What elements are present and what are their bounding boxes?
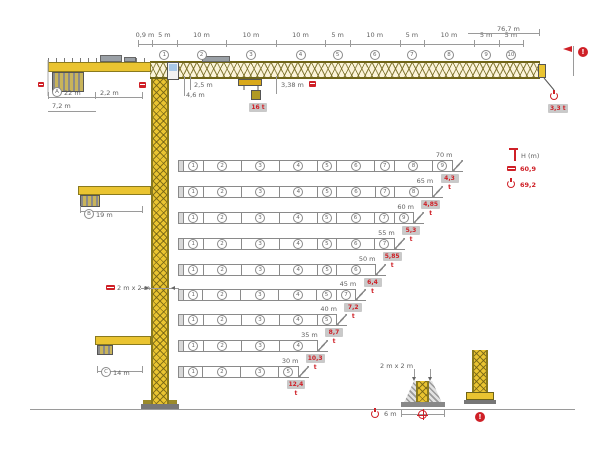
section-number-4: 4 (293, 187, 303, 197)
config-capacity-badge: 4,3 t (441, 174, 459, 183)
section-number-4: 4 (293, 161, 303, 171)
ground-line (30, 409, 575, 410)
jib-dim-line (138, 44, 523, 45)
section-number-2: 2 (217, 213, 227, 223)
section-number-3: 3 (255, 239, 265, 249)
legend-height-2: 69,2 (520, 181, 536, 189)
config-row-65m: 12345678 (178, 186, 433, 198)
config-row-45m: 123457 (178, 289, 356, 301)
tick (142, 92, 143, 99)
jib-tip-taper (433, 186, 443, 198)
section-number-1: 1 (188, 315, 198, 325)
counterjib-machinery (124, 57, 136, 62)
config-section-cell: 3 (242, 213, 280, 223)
jib-segment-length: 10 m (243, 31, 260, 39)
config-section-cell: 4 (279, 290, 317, 300)
counterjib-b-label: 19 m (96, 211, 113, 219)
tick (97, 366, 98, 373)
height-marker-pole (573, 46, 574, 76)
section-number-5: 5 (322, 265, 332, 275)
tick (80, 206, 81, 213)
dim-line-min-radius (276, 76, 277, 94)
section-number-2: 2 (217, 187, 227, 197)
config-section-cell: 4 (280, 341, 317, 351)
section-number-5: 5 (322, 290, 332, 300)
config-section-cell: 2 (204, 239, 242, 249)
section-number-4: 4 (293, 315, 303, 325)
tick (401, 410, 402, 417)
config-row-30m: 1235 (178, 366, 299, 378)
section-number-7: 7 (341, 290, 351, 300)
section-number-2: 2 (217, 161, 227, 171)
section-number-4: 4 (296, 50, 306, 60)
config-section-cell: 7 (375, 239, 394, 249)
jib-segment-length: 0,9 m (136, 31, 155, 39)
config-row-60m: 12345679 (178, 212, 414, 224)
config-section-cell: 2 (204, 161, 242, 171)
jib-truss (150, 61, 540, 79)
section-number-3: 3 (255, 161, 265, 171)
section-number-3: 3 (246, 50, 256, 60)
counterjib-mechanism-icon (38, 82, 44, 87)
alert-icon: ! (475, 412, 485, 422)
counterjib-b-ballast (80, 195, 100, 207)
config-section-cell: 9 (395, 213, 414, 223)
mast-base-plate (141, 404, 179, 409)
section-number-6: 6 (351, 187, 361, 197)
config-section-cell: 6 (337, 213, 375, 223)
dim-line-jib-depth (190, 76, 191, 90)
config-section-cell: 2 (204, 265, 242, 275)
base-mast-label: 2 m x 2 m (380, 362, 413, 370)
section-number-1: 1 (188, 290, 198, 300)
config-section-cell: 4 (280, 265, 318, 275)
tick (142, 206, 143, 213)
section-number-4: 4 (293, 341, 303, 351)
min-radius-label: 3,38 m (281, 81, 304, 89)
climbing-frame-beam (464, 400, 496, 404)
section-number-9: 9 (399, 213, 409, 223)
slewing-mechanism-icon (139, 82, 146, 88)
rear-height-label: 7,2 m (52, 102, 71, 110)
config-section-cell: 1 (184, 187, 204, 197)
counterjib-c-id: C (101, 367, 111, 377)
tick (142, 366, 143, 373)
config-section-cell: 2 (203, 290, 241, 300)
config-section-cell: 5 (279, 367, 297, 377)
config-section-cell: 3 (242, 239, 280, 249)
config-row-50m: 123456 (178, 264, 376, 276)
config-length-label: 70 m (423, 151, 453, 159)
hoist-winch (100, 55, 122, 62)
config-section-cell: 3 (242, 265, 280, 275)
wind-flag-icon (563, 46, 572, 52)
section-number-5: 5 (322, 187, 332, 197)
section-number-3: 3 (255, 367, 265, 377)
alert-icon: ! (578, 47, 588, 57)
operator-cab (167, 62, 179, 80)
section-number-3: 3 (255, 187, 265, 197)
climbing-mast-section (472, 350, 488, 394)
config-section-cell: 6 (337, 187, 375, 197)
counterjib-radius-id: A (52, 87, 62, 97)
arrow-right-icon (145, 286, 149, 290)
jib-tip-taper (299, 366, 309, 378)
jib-segment-length: 10 m (366, 31, 383, 39)
config-section-cell: 3 (242, 315, 280, 325)
config-section-cell: 1 (184, 341, 204, 351)
config-section-cell: 2 (204, 315, 242, 325)
jib-tip-taper (356, 289, 366, 301)
jib-tip-taper (395, 238, 405, 250)
rear-height-dim-line (48, 111, 96, 112)
config-section-cell: 2 (204, 213, 242, 223)
jib-segment-length: 10 m (292, 31, 309, 39)
config-capacity-badge: 8,7 t (325, 328, 343, 337)
config-section-cell: 2 (204, 341, 242, 351)
config-section-cell: 1 (184, 265, 204, 275)
foot-height-label: 4,6 m (186, 91, 205, 99)
config-length-label: 45 m (326, 280, 356, 288)
counterjib-radius-label: 22 m (64, 89, 81, 97)
config-section-cell: 8 (395, 161, 433, 171)
section-number-5: 5 (322, 161, 332, 171)
legend-title: H (m) (521, 152, 539, 160)
tip-hook-icon (550, 90, 558, 100)
mast-section-icon (106, 285, 115, 290)
jib-segment-length: 10 m (193, 31, 210, 39)
section-number-2: 2 (217, 239, 227, 249)
section-number-8: 8 (444, 50, 454, 60)
section-number-2: 2 (197, 50, 207, 60)
dim-line-foot-height (184, 76, 185, 96)
config-capacity-badge: 4,85 t (421, 200, 440, 209)
config-section-cell: 3 (242, 187, 280, 197)
config-section-cell: 2 (203, 367, 241, 377)
config-section-cell: 7 (375, 161, 395, 171)
tip-load-badge: 3,3 t (548, 104, 568, 113)
jib-tip-taper (337, 314, 347, 326)
config-section-cell: 1 (184, 239, 204, 249)
counterjib-b-id: B (84, 209, 94, 219)
config-length-label: 60 m (384, 203, 414, 211)
config-section-cell: 7 (376, 187, 396, 197)
config-length-label: 55 m (365, 229, 395, 237)
config-section-cell: 1 (184, 315, 204, 325)
config-length-label: 65 m (403, 177, 433, 185)
config-section-cell: 2 (204, 187, 242, 197)
jib-segment-length: 10 m (441, 31, 458, 39)
section-number-1: 1 (188, 367, 198, 377)
config-section-cell: 3 (241, 367, 279, 377)
config-section-cell: 6 (337, 265, 374, 275)
section-number-3: 3 (255, 315, 265, 325)
config-capacity-badge: 5,85 t (383, 252, 402, 261)
config-section-cell: 7 (337, 290, 355, 300)
config-length-label: 50 m (346, 255, 376, 263)
legend-height-1: 60,9 (520, 165, 536, 173)
config-section-cell: 3 (242, 161, 280, 171)
section-number-7: 7 (380, 161, 390, 171)
section-number-1: 1 (188, 265, 198, 275)
hook-block (251, 90, 261, 100)
section-number-6: 6 (351, 213, 361, 223)
config-section-cell: 6 (337, 161, 375, 171)
section-number-2: 2 (217, 265, 227, 275)
tick (539, 29, 540, 36)
section-number-1: 1 (159, 50, 169, 60)
section-number-1: 1 (188, 239, 198, 249)
jib-tip-taper (414, 212, 424, 224)
section-number-6: 6 (351, 239, 361, 249)
jib-tip-taper (318, 340, 328, 352)
trolley-mechanism-icon (309, 81, 316, 87)
section-number-10: 10 (506, 50, 516, 60)
crane-height-icon (506, 148, 518, 161)
config-section-cell: 1 (184, 290, 203, 300)
base-span-label: 6 m (384, 410, 397, 418)
section-number-4: 4 (293, 239, 303, 249)
arrow-left-icon (171, 286, 175, 290)
config-capacity-badge: 6,4 t (364, 278, 382, 287)
config-section-cell: 4 (280, 239, 318, 249)
section-number-5: 5 (333, 50, 343, 60)
section-number-7: 7 (407, 50, 417, 60)
config-section-cell: 1 (184, 161, 204, 171)
config-section-cell: 5 (318, 239, 338, 249)
crane-diagram: 16 t 3,3 t 2,5 m 4,6 m 3,38 m A 22 m 2,2… (0, 0, 600, 450)
max-load-badge: 16 t (249, 103, 267, 112)
section-number-3: 3 (255, 213, 265, 223)
config-section-cell: 5 (318, 315, 337, 325)
counterjib-c-ballast (97, 345, 113, 355)
jib-tip-block (538, 64, 546, 78)
section-number-8: 8 (409, 187, 419, 197)
config-section-cell: 5 (318, 187, 338, 197)
section-number-2: 2 (217, 341, 227, 351)
section-number-6: 6 (370, 50, 380, 60)
config-section-cell: 5 (318, 213, 338, 223)
config-capacity-badge: 10,3 t (306, 354, 325, 363)
config-section-cell: 5 (318, 265, 338, 275)
base-hook-icon (371, 408, 379, 418)
trolley (238, 79, 262, 86)
section-number-3: 3 (255, 341, 265, 351)
config-section-cell: 1 (184, 367, 203, 377)
hook-icon (507, 178, 515, 188)
section-number-2: 2 (217, 367, 227, 377)
center-crosshair-icon (418, 410, 427, 419)
section-number-1: 1 (188, 161, 198, 171)
section-number-5: 5 (322, 213, 332, 223)
section-number-9: 9 (437, 161, 447, 171)
dim-tick (523, 40, 524, 47)
base-mast-stub (416, 381, 429, 402)
counterjib-c-label: 14 m (113, 369, 130, 377)
section-number-2: 2 (217, 315, 227, 325)
section-number-5: 5 (283, 367, 293, 377)
config-row-35m: 1234 (178, 340, 318, 352)
section-number-4: 4 (293, 265, 303, 275)
tick (444, 410, 445, 417)
rear-width-label: 2,2 m (100, 89, 119, 97)
section-number-5: 5 (322, 315, 332, 325)
jib-tip-taper (453, 160, 463, 172)
jib-segment-length: 5 m (406, 31, 419, 39)
tick (95, 92, 96, 99)
config-section-cell: 5 (318, 161, 338, 171)
config-length-label: 35 m (288, 331, 318, 339)
config-capacity-badge: 5,3 t (402, 226, 420, 235)
config-section-cell: 9 (433, 161, 452, 171)
jib-segment-length: 5 m (158, 31, 171, 39)
jib-depth-label: 2,5 m (194, 81, 213, 89)
section-number-8: 8 (408, 161, 418, 171)
section-number-4: 4 (293, 290, 303, 300)
section-number-1: 1 (188, 187, 198, 197)
section-number-7: 7 (379, 213, 389, 223)
section-number-4: 4 (293, 213, 303, 223)
section-number-1: 1 (188, 213, 198, 223)
section-number-2: 2 (217, 290, 227, 300)
config-section-cell: 7 (375, 213, 395, 223)
config-row-40m: 12345 (178, 314, 337, 326)
section-number-3: 3 (255, 290, 265, 300)
section-number-7: 7 (379, 239, 389, 249)
config-row-70m: 123456789 (178, 160, 453, 172)
config-section-cell: 4 (280, 213, 318, 223)
section-number-7: 7 (380, 187, 390, 197)
ballast-slab-icon (507, 166, 516, 171)
config-row-55m: 1234567 (178, 238, 395, 250)
jib-total-length: 76,7 m (497, 25, 520, 33)
section-number-9: 9 (481, 50, 491, 60)
climbing-frame (466, 392, 494, 400)
jib-tip-taper (376, 264, 386, 276)
config-section-cell: 4 (280, 315, 318, 325)
total-dim-line (468, 33, 540, 34)
config-section-cell: 3 (242, 341, 280, 351)
counterjib-b (78, 186, 151, 195)
config-section-cell: 8 (395, 187, 432, 197)
counterjib (48, 62, 151, 72)
config-length-label: 30 m (269, 357, 299, 365)
config-section-cell: 5 (317, 290, 336, 300)
section-number-6: 6 (351, 161, 361, 171)
config-section-cell: 4 (280, 187, 318, 197)
jib-segment-length: 5 m (331, 31, 344, 39)
section-number-1: 1 (188, 341, 198, 351)
config-capacity-badge: 7,2 t (344, 303, 362, 312)
config-length-label: 40 m (307, 305, 337, 313)
base-plate (401, 402, 445, 407)
config-section-cell: 4 (280, 161, 318, 171)
config-section-cell: 3 (241, 290, 279, 300)
counterjib-c (95, 336, 151, 345)
config-capacity-badge: 12,4 t (287, 380, 306, 389)
tick (48, 92, 49, 99)
tower-mast (151, 62, 169, 408)
section-number-3: 3 (255, 265, 265, 275)
config-section-cell: 6 (337, 239, 375, 249)
section-number-6: 6 (351, 265, 361, 275)
section-number-5: 5 (322, 239, 332, 249)
config-section-cell: 1 (184, 213, 204, 223)
